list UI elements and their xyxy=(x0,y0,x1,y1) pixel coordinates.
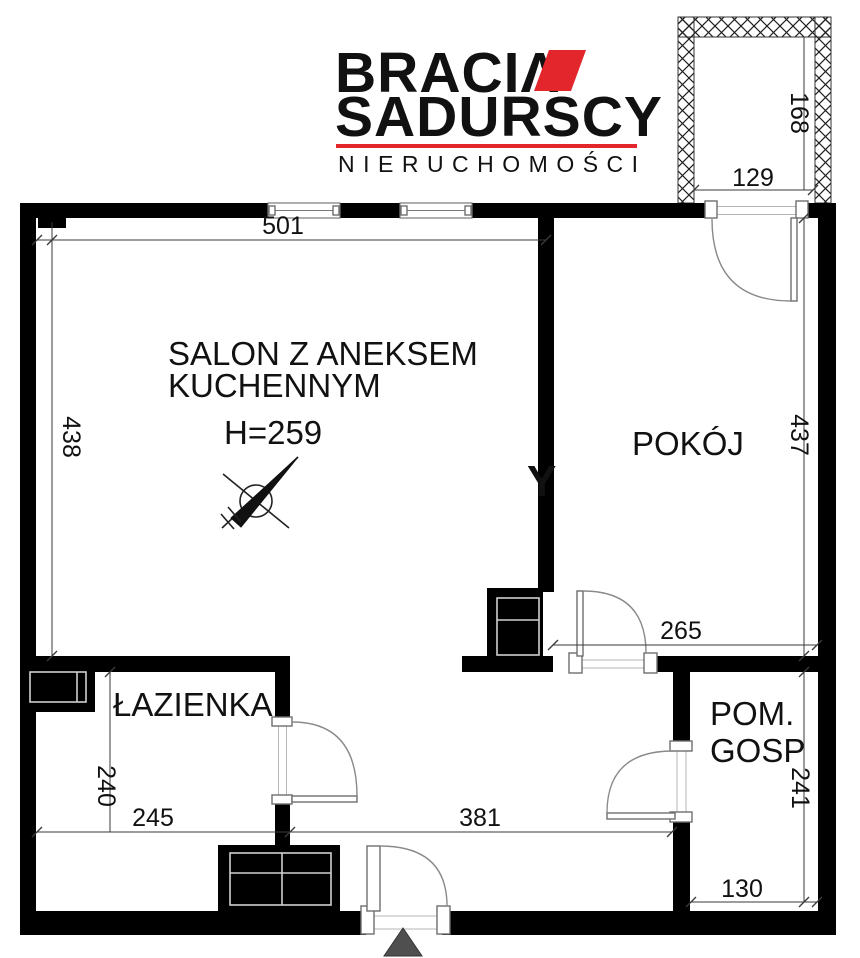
dim-pomgosp-depth: 241 xyxy=(786,767,814,809)
door-leaf xyxy=(577,591,583,656)
dim-pokoj-depth: 437 xyxy=(785,414,813,456)
logo-underline xyxy=(336,144,637,148)
outer-wall-right xyxy=(818,203,836,935)
wardrobe-fixture xyxy=(218,845,340,913)
floor-plan-page: BRACIΛ SADURSCY NIERUCHOMOŚCI 129 168 xyxy=(0,0,860,958)
balcony-wall-right xyxy=(815,17,831,203)
bathroom-fixture xyxy=(22,664,95,712)
wall-pokoj-bottom-right xyxy=(657,656,836,672)
lazienka-label: ŁAZIENKA xyxy=(113,686,273,723)
pokoj-label: POKÓJ xyxy=(632,425,744,462)
watermark-fragment: Y xyxy=(527,457,556,506)
pomgosp-label-line1: POM. xyxy=(710,695,794,732)
door-leaf xyxy=(607,813,675,819)
salon-height-label: H=259 xyxy=(224,414,322,451)
pomgosp-label-line2: GOSP xyxy=(710,732,805,769)
wall-lazienka-right-upper xyxy=(275,672,290,722)
salon-label-line2: KUCHENNYM xyxy=(168,367,381,404)
dim-salon-depth: 438 xyxy=(57,416,85,458)
outer-wall-left xyxy=(20,203,36,935)
dim-pomgosp-width: 130 xyxy=(721,875,763,903)
floor-plan-canvas: BRACIΛ SADURSCY NIERUCHOMOŚCI 129 168 xyxy=(0,0,860,958)
window xyxy=(400,203,472,218)
wall-pomgosp-left-upper xyxy=(673,672,690,745)
dim-pokoj-width: 265 xyxy=(660,617,702,645)
dim-salon-width: 501 xyxy=(262,212,304,240)
wall-pomgosp-left-lower xyxy=(673,818,690,935)
logo-tagline: NIERUCHOMOŚCI xyxy=(338,150,647,177)
dim-balcony-depth: 168 xyxy=(785,92,813,134)
door-leaf xyxy=(292,796,357,802)
door-leaf xyxy=(367,846,380,911)
balcony-wall-left xyxy=(678,17,694,203)
wall-salon-pokoj-divider xyxy=(538,218,554,592)
dim-lazienka-depth: 240 xyxy=(92,765,120,807)
dim-hall-width: 381 xyxy=(459,804,501,832)
balcony-wall-top xyxy=(678,17,831,37)
dim-lazienka-width: 245 xyxy=(132,804,174,832)
door-leaf xyxy=(791,218,797,301)
dim-balcony-width: 129 xyxy=(732,164,774,192)
logo-brand-bottom: SADURSCY xyxy=(335,85,663,149)
kitchen-unit-fixture xyxy=(487,588,543,661)
